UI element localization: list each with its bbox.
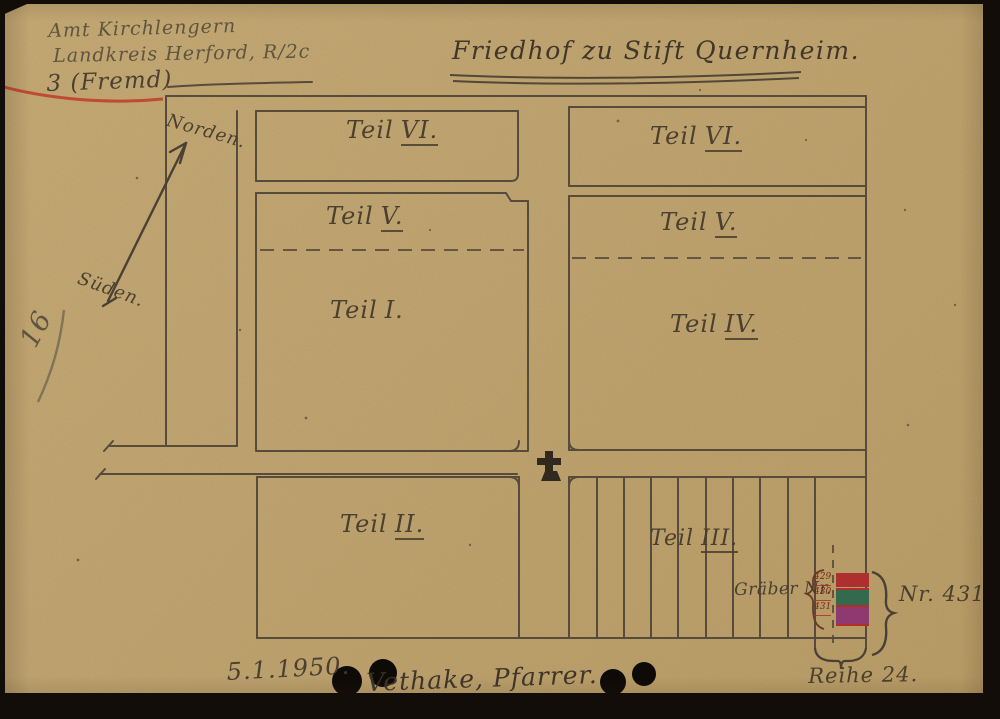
section-label-teil-v-right: TeilV.	[660, 208, 737, 236]
section-numeral: V.	[381, 202, 404, 232]
scan-corner-smudge	[0, 0, 36, 16]
section-label-teil-ii: TeilII.	[340, 510, 424, 538]
section-numeral: II.	[395, 510, 425, 540]
corner-note-line2: Landkreis Herford, R/2c	[53, 41, 311, 67]
section-numeral: V.	[715, 208, 738, 238]
row-label: Reihe 24.	[808, 662, 918, 688]
section-label-teil-iv: TeilIV.	[670, 310, 758, 338]
scan-border-bottom	[0, 693, 1000, 719]
section-word: Teil	[346, 116, 394, 144]
grave-numbers-list: 429 430 431	[814, 571, 831, 616]
grave-color-marks	[836, 573, 869, 625]
section-label-teil-vi-left: TeilVI.	[346, 116, 438, 144]
section-label-teil-v-left: TeilV.	[326, 202, 403, 230]
section-numeral: I.	[385, 296, 404, 324]
page-title: Friedhof zu Stift Quernheim.	[452, 36, 860, 65]
section-label-teil-vi-right: TeilVI.	[650, 122, 742, 150]
scan-border-right	[983, 0, 1000, 719]
corner-note-line3: 3 (Fremd)	[46, 67, 173, 97]
section-label-teil-i: TeilI.	[330, 296, 404, 324]
section-numeral: VI.	[705, 122, 742, 152]
section-numeral: IV.	[725, 310, 758, 340]
section-word: Teil	[330, 296, 378, 324]
grave-number: 430	[814, 586, 831, 601]
section-numeral: VI.	[401, 116, 438, 146]
scan-border-left	[0, 0, 5, 719]
grave-number: 429	[814, 571, 831, 586]
section-word: Teil	[340, 510, 388, 538]
scanned-cemetery-plan-page: Amt Kirchlengern Landkreis Herford, R/2c…	[0, 0, 1000, 719]
grave-callout-number: Nr. 431.	[899, 582, 993, 606]
plan-drawing	[0, 0, 1000, 719]
scan-border-top	[0, 0, 1000, 4]
section-word: Teil	[326, 202, 374, 230]
section-numeral: III.	[701, 526, 738, 553]
section-word: Teil	[650, 526, 694, 551]
grave-number: 431	[814, 601, 831, 616]
section-word: Teil	[650, 122, 698, 150]
section-label-teil-iii: TeilIII.	[650, 526, 738, 551]
section-word: Teil	[660, 208, 708, 236]
section-word: Teil	[670, 310, 718, 338]
